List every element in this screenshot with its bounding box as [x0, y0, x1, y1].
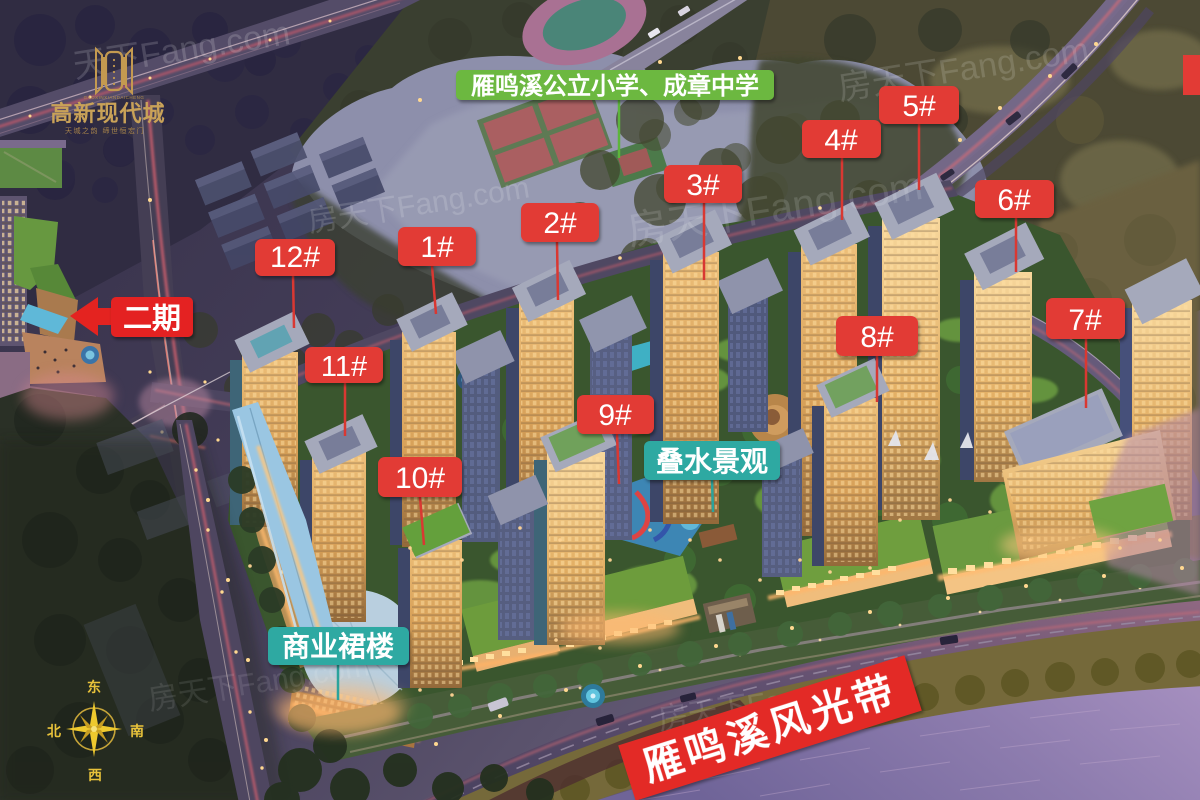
svg-text:2#: 2# [543, 207, 577, 240]
svg-text:12#: 12# [270, 241, 320, 274]
svg-text:北: 北 [47, 723, 61, 739]
svg-text:6#: 6# [997, 184, 1031, 217]
svg-text:东: 东 [87, 679, 101, 695]
svg-text:4#: 4# [824, 124, 858, 157]
svg-text:GAOXINXIANDAICHENG: GAOXINXIANDAICHENG [84, 95, 145, 100]
svg-text:叠水景观: 叠水景观 [656, 446, 768, 477]
svg-text:高新现代城: 高新现代城 [50, 101, 165, 126]
svg-text:3#: 3# [686, 169, 720, 202]
svg-text:南: 南 [130, 723, 144, 739]
svg-text:商业裙楼: 商业裙楼 [282, 631, 394, 662]
svg-text:1#: 1# [420, 231, 454, 264]
svg-text:二期: 二期 [123, 302, 181, 335]
svg-text:5#: 5# [902, 90, 936, 123]
svg-text:9#: 9# [598, 399, 632, 432]
svg-text:10#: 10# [395, 462, 445, 495]
svg-text:雁鸣溪公立小学、成章中学: 雁鸣溪公立小学、成章中学 [471, 72, 759, 100]
svg-text:天城之韵 缔世恒宏门: 天城之韵 缔世恒宏门 [65, 126, 145, 135]
svg-text:8#: 8# [860, 321, 894, 354]
svg-text:11#: 11# [321, 351, 367, 383]
svg-text:7#: 7# [1068, 304, 1102, 337]
svg-text:西: 西 [88, 767, 102, 783]
